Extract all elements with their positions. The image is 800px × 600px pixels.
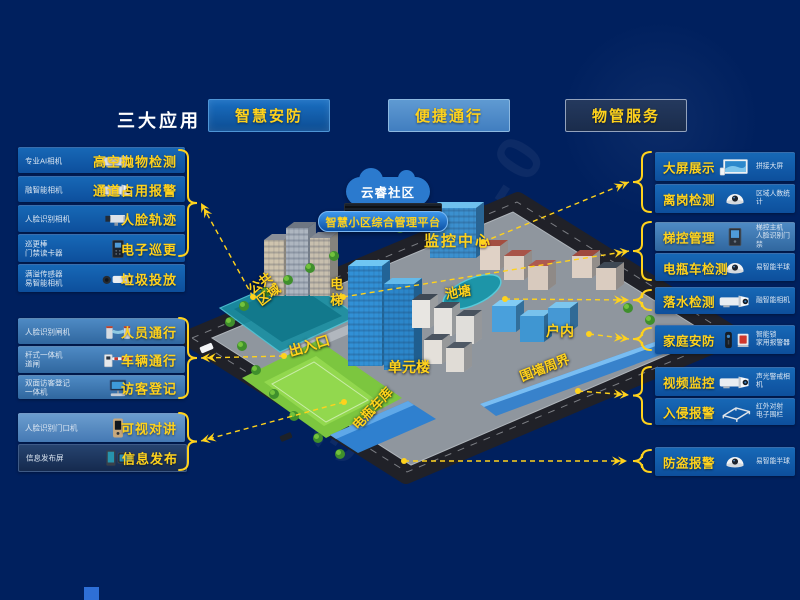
video-wall-icon xyxy=(717,156,753,178)
feature-label: 访客登记 xyxy=(121,378,177,397)
feature-label: 高空抛物检测 xyxy=(93,151,177,170)
app-button-property[interactable]: 物管服务 xyxy=(565,99,687,132)
feature-label: 大屏展示 xyxy=(663,158,715,177)
device-name: 巡更棒 门禁读卡器 xyxy=(25,239,81,258)
left-device-row: 融智能相机通道占用报警 xyxy=(18,176,185,202)
app-button-access[interactable]: 便捷通行 xyxy=(388,99,510,132)
cloud-platform-badge: 云睿社区 xyxy=(346,177,430,206)
feature-label: 人脸轨迹 xyxy=(121,210,177,229)
feature-label: 电子巡更 xyxy=(121,239,177,258)
feature-label: 离岗检测 xyxy=(663,190,715,209)
right-device-row: 融智能相机落水检测 xyxy=(655,287,795,314)
feature-label: 垃圾投放 xyxy=(121,269,177,288)
feature-label: 家庭安防 xyxy=(663,331,715,350)
feature-label: 信息发布 xyxy=(122,449,178,468)
left-device-row: 信息发布屏信息发布 xyxy=(18,444,187,472)
lock-siren-icon xyxy=(717,329,753,351)
right-device-row: 易智能半球防盗报警 xyxy=(655,447,795,476)
device-name: 声光警戒相机 xyxy=(756,374,794,391)
device-name: 信息发布屏 xyxy=(26,453,82,462)
map-zone-label: 户内 xyxy=(546,324,574,339)
left-device-row: 巡更棒 门禁读卡器电子巡更 xyxy=(18,234,185,262)
device-name: 易智能半球 xyxy=(756,458,794,466)
left-device-row: 人脸识别门口机可视对讲 xyxy=(18,413,185,442)
feature-label: 落水检测 xyxy=(663,292,715,311)
left-device-row: 满溢传感器 易智能相机垃圾投放 xyxy=(18,264,185,292)
device-name: 红外对射 电子围栏 xyxy=(756,404,794,421)
left-device-row: 双面访客登记 一体机访客登记 xyxy=(18,375,185,399)
right-device-row: 红外对射 电子围栏入侵报警 xyxy=(655,398,795,425)
feature-label: 电瓶车检测 xyxy=(663,258,728,277)
bullet-camera-icon xyxy=(717,290,753,312)
device-name: 区域人数统计 xyxy=(756,191,794,208)
device-name: 人脸识别门口机 xyxy=(25,423,81,432)
right-device-row: 区域人数统计离岗检测 xyxy=(655,184,795,213)
right-device-row: 智能锁 家用报警器家庭安防 xyxy=(655,325,795,354)
feature-label: 视频监控 xyxy=(663,373,715,392)
feature-label: 防盗报警 xyxy=(663,453,715,472)
smart-community-infographic: 33-2020-0 xyxy=(0,0,800,600)
feature-label: 梯控管理 xyxy=(663,228,715,247)
device-name: 人脸识别闸机 xyxy=(25,327,81,336)
device-name: 融智能相机 xyxy=(756,297,794,305)
device-name: 智能锁 家用报警器 xyxy=(756,332,794,349)
device-name: 杆式一体机 道闸 xyxy=(25,351,81,370)
bullet-camera-icon xyxy=(717,371,753,393)
feature-label: 可视对讲 xyxy=(121,419,177,438)
device-name: 融智能相机 xyxy=(25,185,81,194)
feature-label: 通道占用报警 xyxy=(93,180,177,199)
device-name: 专业AI相机 xyxy=(25,156,81,165)
dome-camera-icon xyxy=(717,451,753,473)
monitor-center-label: 监控中心 xyxy=(424,230,492,251)
left-device-row: 人脸识别闸机人员通行 xyxy=(18,318,185,344)
device-name: 梯控主机 人脸识别门禁 xyxy=(756,224,794,249)
page-title: 三大应用 xyxy=(117,107,201,133)
device-name: 拼接大屏 xyxy=(756,163,794,171)
feature-label: 车辆通行 xyxy=(121,351,177,370)
map-zone-label: 电梯 xyxy=(328,277,342,309)
device-name: 易智能半球 xyxy=(756,263,794,271)
corner-chip xyxy=(84,587,99,600)
device-name: 人脸识别相机 xyxy=(25,214,81,223)
right-device-row: 声光警戒相机视频监控 xyxy=(655,367,795,396)
right-device-row: 拼接大屏大屏展示 xyxy=(655,152,795,181)
feature-label: 人员通行 xyxy=(121,322,177,341)
map-zone-label: 单元楼 xyxy=(388,360,430,375)
fence-icon xyxy=(717,401,753,423)
right-device-row: 易智能半球电瓶车检测 xyxy=(655,253,795,281)
left-device-row: 专业AI相机高空抛物检测 xyxy=(18,147,185,173)
left-device-row: 杆式一体机 道闸车辆通行 xyxy=(18,346,185,373)
left-device-row: 人脸识别相机人脸轨迹 xyxy=(18,205,185,232)
cloud-platform-label: 云睿社区 xyxy=(361,182,415,201)
app-button-security[interactable]: 智慧安防 xyxy=(208,99,330,132)
elevator-panel-icon xyxy=(717,226,753,248)
dome-camera-icon xyxy=(717,188,753,210)
platform-banner: 智慧小区综合管理平台 xyxy=(318,211,448,232)
feature-label: 入侵报警 xyxy=(663,403,715,422)
device-name: 满溢传感器 易智能相机 xyxy=(25,269,81,288)
right-device-row: 梯控主机 人脸识别门禁梯控管理 xyxy=(655,222,795,251)
device-name: 双面访客登记 一体机 xyxy=(25,378,81,397)
